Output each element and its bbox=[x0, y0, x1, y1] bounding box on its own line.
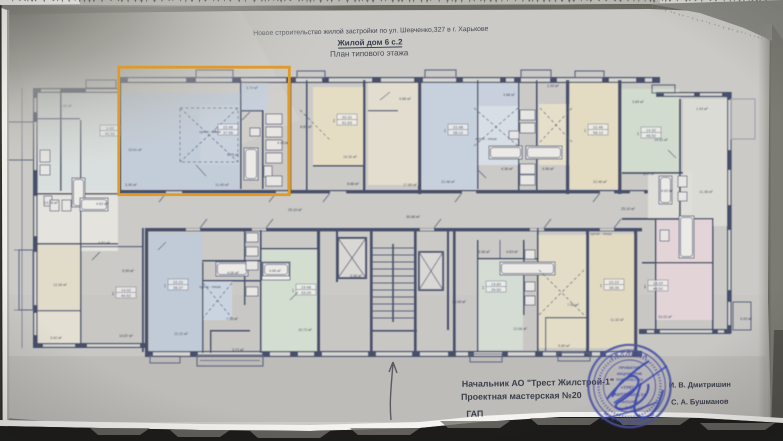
svg-text:4.36 м²: 4.36 м² bbox=[501, 167, 513, 171]
svg-text:Проектная мастерская №20: Проектная мастерская №20 bbox=[461, 390, 582, 402]
svg-text:22.46: 22.46 bbox=[593, 125, 604, 130]
svg-text:4.88 м²: 4.88 м² bbox=[399, 97, 411, 101]
svg-text:13.28 м²: 13.28 м² bbox=[44, 201, 58, 205]
svg-text:кухня - ниша: кухня - ниша bbox=[475, 137, 496, 141]
svg-text:4.63 м²: 4.63 м² bbox=[506, 250, 518, 254]
svg-text:22.22: 22.22 bbox=[173, 280, 184, 285]
svg-text:10.73 м²: 10.73 м² bbox=[298, 328, 312, 332]
svg-text:61.83: 61.83 bbox=[342, 120, 353, 125]
svg-text:7.58 м²: 7.58 м² bbox=[226, 317, 238, 321]
svg-text:11.45 м²: 11.45 м² bbox=[215, 183, 229, 187]
svg-text:14.02: 14.02 bbox=[121, 288, 132, 293]
svg-text:14.67 м²: 14.67 м² bbox=[119, 334, 133, 338]
svg-text:11.32 м²: 11.32 м² bbox=[610, 318, 624, 322]
svg-text:3.89 м²: 3.89 м² bbox=[632, 100, 644, 104]
svg-text:38.12: 38.12 bbox=[453, 130, 464, 135]
svg-text:13.08 м²: 13.08 м² bbox=[513, 327, 527, 331]
svg-text:29.10 м²: 29.10 м² bbox=[288, 208, 302, 212]
svg-text:22.22: 22.22 bbox=[609, 280, 620, 285]
svg-text:19.48: 19.48 bbox=[301, 285, 312, 290]
svg-text:22.48 м²: 22.48 м² bbox=[441, 180, 455, 184]
svg-text:С. А. Бушманов: С. А. Бушманов bbox=[671, 397, 729, 407]
svg-text:5.95 м²: 5.95 м² bbox=[125, 183, 137, 187]
svg-text:5.89 м²: 5.89 м² bbox=[558, 344, 570, 348]
svg-text:30.68 м²: 30.68 м² bbox=[406, 215, 420, 219]
svg-text:8.88 м²: 8.88 м² bbox=[347, 182, 359, 186]
svg-text:1.93 м²: 1.93 м² bbox=[547, 84, 559, 88]
svg-text:33.02 м²: 33.02 м² bbox=[658, 315, 672, 319]
svg-text:3.88 м²: 3.88 м² bbox=[503, 93, 515, 97]
svg-text:38.37: 38.37 bbox=[173, 285, 184, 290]
svg-text:Жилой дом 6 с.2: Жилой дом 6 с.2 bbox=[336, 37, 403, 47]
svg-text:22.46 м²: 22.46 м² bbox=[593, 180, 607, 184]
svg-text:4.66 м²: 4.66 м² bbox=[269, 269, 281, 273]
svg-text:1.43 м²: 1.43 м² bbox=[696, 107, 708, 111]
svg-text:17.89 м²: 17.89 м² bbox=[403, 183, 417, 187]
svg-text:11.38 м²: 11.38 м² bbox=[699, 190, 713, 194]
svg-text:22.22 м²: 22.22 м² bbox=[174, 332, 188, 336]
svg-text:14.02: 14.02 bbox=[653, 281, 664, 286]
svg-text:7.58 м²: 7.58 м² bbox=[567, 303, 579, 307]
svg-text:4.62 м²: 4.62 м² bbox=[96, 202, 108, 206]
svg-text:4.83 м²: 4.83 м² bbox=[661, 189, 673, 193]
svg-text:4.62 м²: 4.62 м² bbox=[98, 241, 110, 245]
svg-text:14.32 м²: 14.32 м² bbox=[343, 155, 357, 159]
svg-text:3.42 м²: 3.42 м² bbox=[50, 336, 62, 340]
svg-text:4.96 м²: 4.96 м² bbox=[542, 167, 554, 171]
svg-text:58.12: 58.12 bbox=[593, 130, 604, 135]
svg-text:39.50: 39.50 bbox=[491, 287, 502, 292]
svg-text:15.80: 15.80 bbox=[491, 282, 502, 287]
svg-text:12.26 м²: 12.26 м² bbox=[53, 283, 67, 287]
svg-text:ГАП: ГАП bbox=[466, 409, 483, 419]
svg-text:И. В. Дмитришин: И. В. Дмитришин bbox=[669, 380, 731, 390]
svg-text:48.52: 48.52 bbox=[653, 286, 664, 291]
svg-text:5.99 м²: 5.99 м² bbox=[122, 269, 134, 273]
svg-text:14.52 м²: 14.52 м² bbox=[654, 138, 668, 142]
svg-text:4.06 м²: 4.06 м² bbox=[227, 271, 239, 275]
svg-text:14.32: 14.32 bbox=[646, 128, 657, 133]
svg-text:22.48: 22.48 bbox=[453, 125, 464, 130]
svg-text:38.36: 38.36 bbox=[609, 285, 620, 290]
svg-text:3.43 м²: 3.43 м² bbox=[740, 317, 752, 321]
svg-text:План типового этажа: План типового этажа bbox=[330, 48, 409, 59]
svg-text:кухня - ниша: кухня - ниша bbox=[199, 285, 220, 289]
svg-text:25.10 м²: 25.10 м² bbox=[621, 207, 635, 211]
svg-text:5.99 м²: 5.99 м² bbox=[643, 172, 655, 176]
svg-text:3.96 м²: 3.96 м² bbox=[478, 250, 490, 254]
svg-text:13.08 м²: 13.08 м² bbox=[452, 300, 466, 304]
svg-text:кухня - ниша: кухня - ниша bbox=[590, 232, 611, 236]
svg-text:40.52: 40.52 bbox=[121, 293, 132, 298]
svg-text:33.29: 33.29 bbox=[301, 290, 312, 295]
svg-text:32.31: 32.31 bbox=[342, 115, 353, 120]
svg-text:5.96 м²: 5.96 м² bbox=[350, 274, 362, 278]
svg-text:3.71 м²: 3.71 м² bbox=[232, 348, 244, 352]
